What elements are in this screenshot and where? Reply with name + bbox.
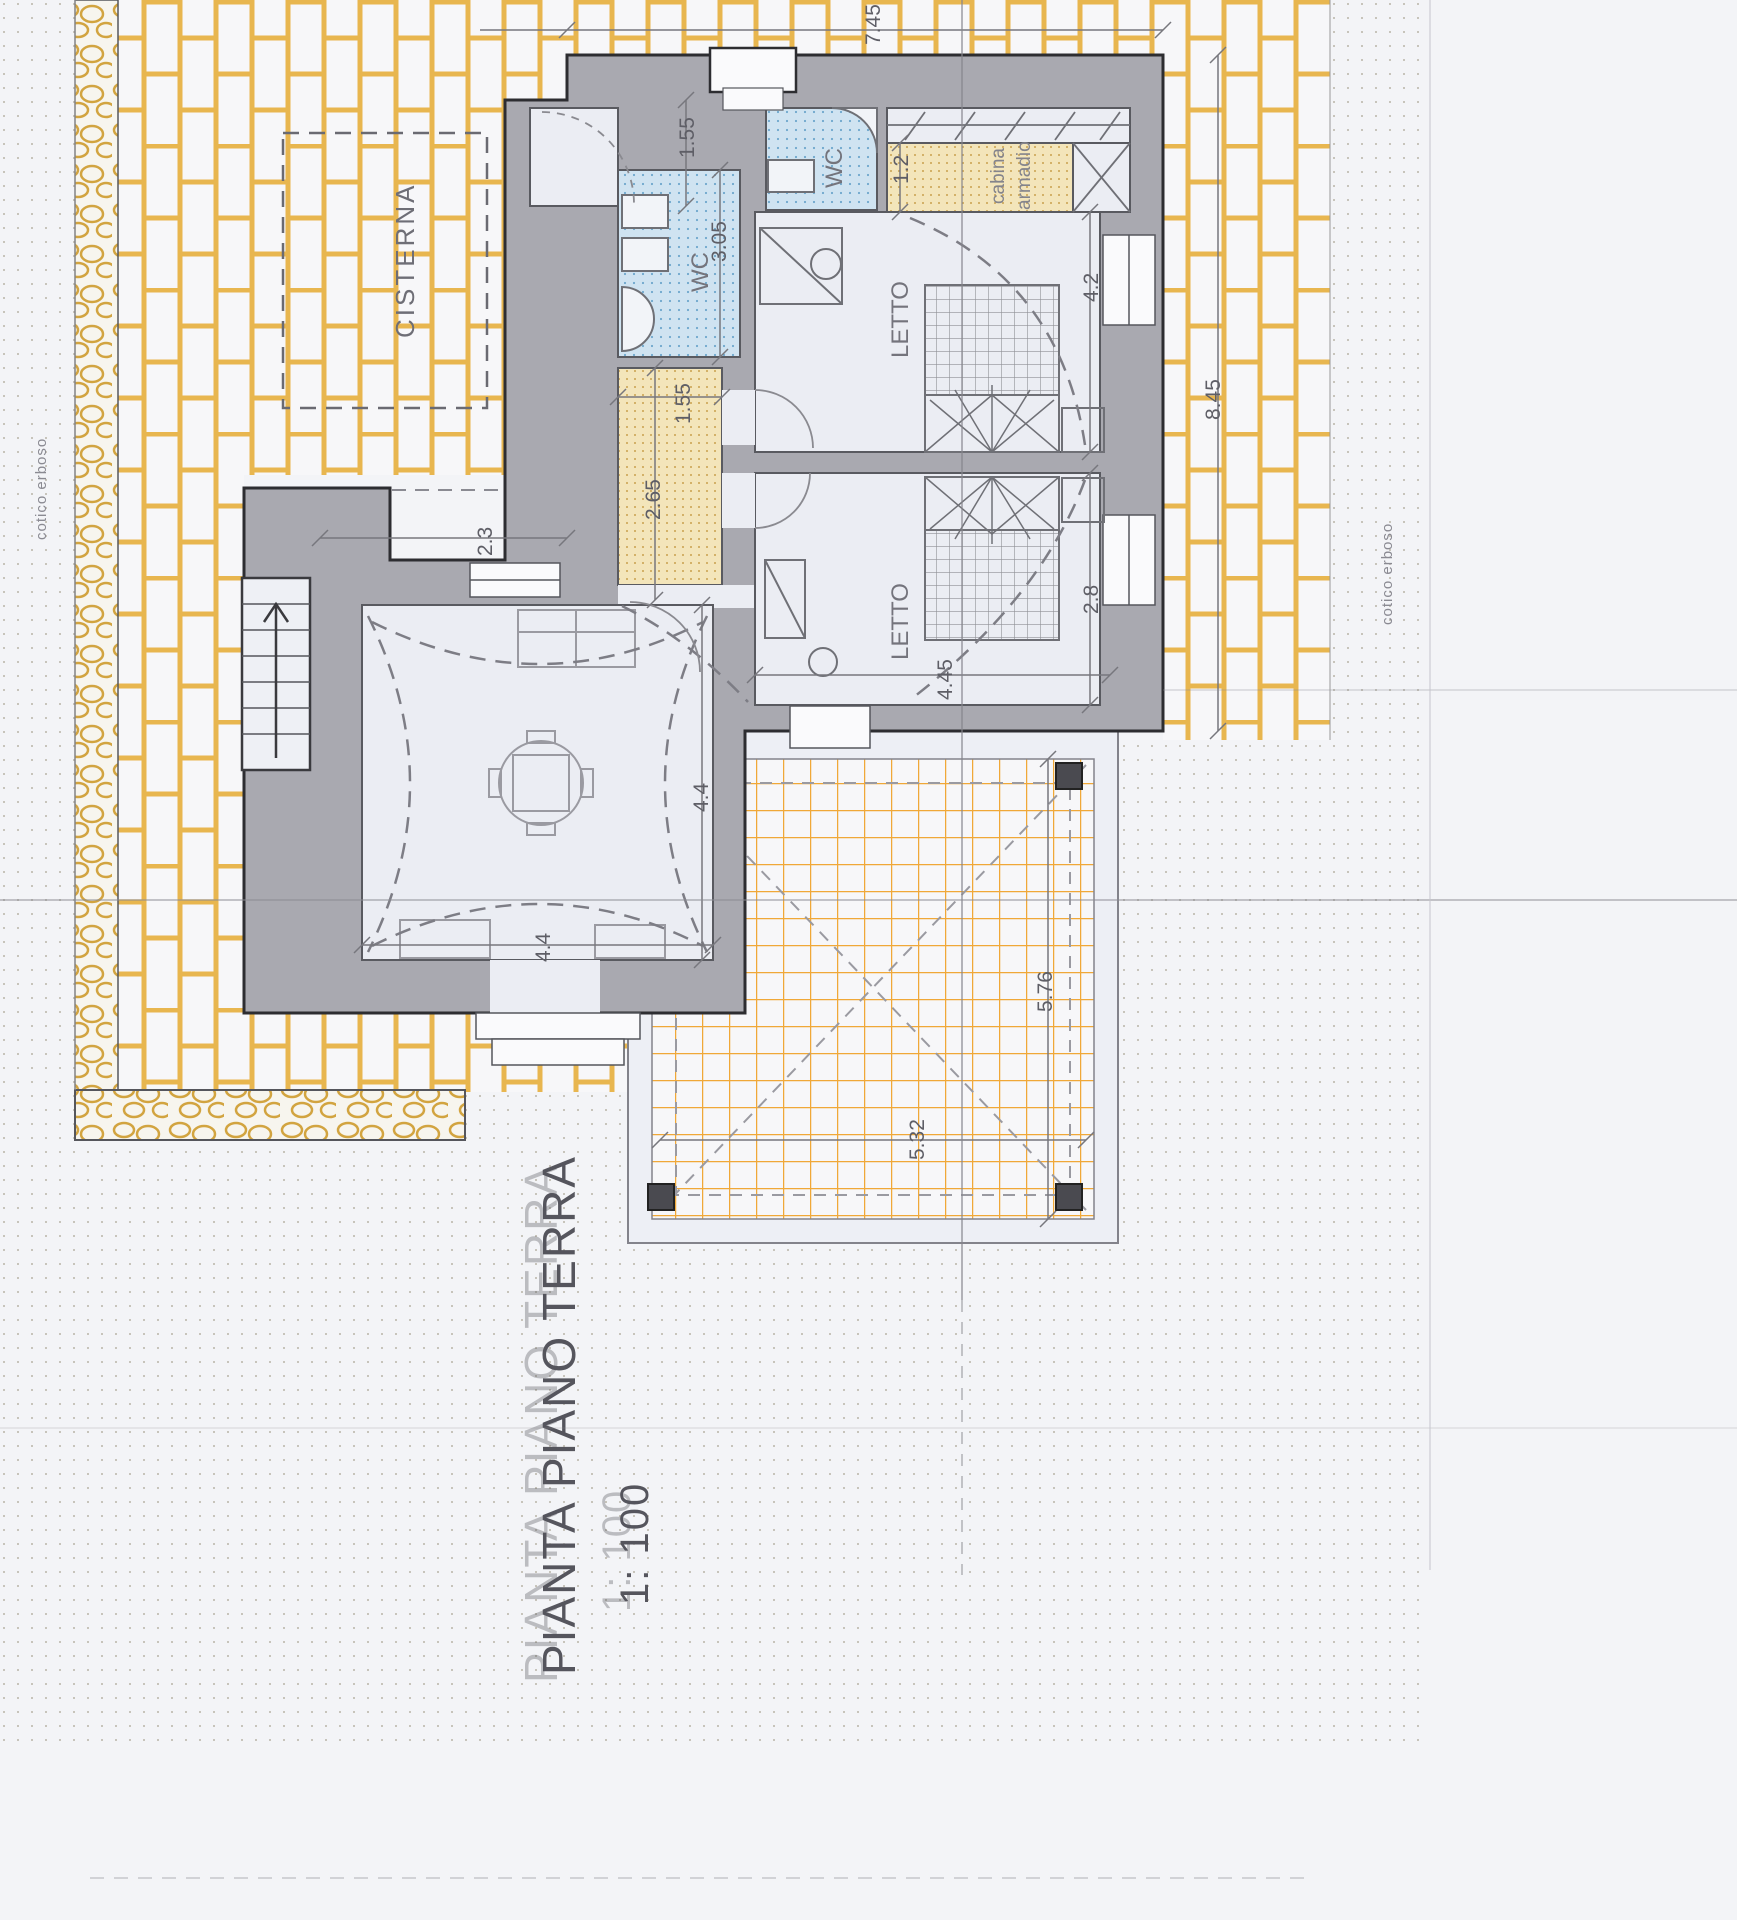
bedroom-top-label: LETTO (887, 281, 914, 358)
ground-cover-left-label: cotico erboso (33, 438, 50, 540)
wc-main-label: WC (687, 252, 714, 292)
entry-vestibule (530, 108, 618, 206)
cisterna-label: CISTERNA (390, 183, 420, 338)
dim-entry-width: 1.55 (676, 117, 699, 158)
dim-closet-depth: 1.2 (890, 155, 913, 184)
hallway (618, 368, 722, 585)
entry-porch-top (710, 48, 796, 92)
dim-bedroom-bottom-depth: 2.8 (1080, 585, 1103, 614)
floor-plan-drawing: 7.45 8.45 2.3 1.55 3.05 1.2 4.2 2.8 4.45… (0, 0, 1737, 1920)
dim-plan-width-top: 7.45 (862, 4, 885, 45)
living-terrace-door-gap (490, 960, 600, 1013)
ground-cover-right-label: cotico erboso (1379, 523, 1396, 625)
door-bedroom-terrace (790, 706, 870, 748)
living-room (362, 605, 713, 960)
closet-label-line2: armadio (1014, 141, 1035, 210)
walkin-closet (887, 143, 1073, 212)
wc-small-label: WC (821, 148, 848, 188)
entry-door-recess (723, 88, 783, 110)
dim-living-depth: 4.4 (690, 782, 713, 812)
dim-bedroom-bottom-width: 4.45 (934, 659, 957, 700)
bedroom-bottom-door-gap (722, 473, 755, 528)
dim-plan-height-right: 8.45 (1202, 379, 1225, 420)
sheet-title: PIANTA PIANO TERRA (533, 1155, 585, 1675)
sheet-scale: 1: 100 (613, 1482, 657, 1605)
bedroom-top-door-gap (722, 390, 755, 445)
bedroom-bottom-label: LETTO (887, 583, 914, 660)
dim-bedroom-top-depth: 4.2 (1080, 273, 1103, 302)
closet-label-line1: cabina (988, 148, 1009, 204)
dim-hall-length: 2.65 (642, 479, 665, 520)
dim-pergola-width: 5.32 (906, 1119, 929, 1160)
dim-annex-offset: 2.3 (474, 527, 497, 556)
porch-step-2 (492, 1039, 624, 1065)
exterior-stairs (242, 578, 310, 770)
dim-hall-width: 1.55 (672, 383, 695, 424)
dim-pergola-depth: 5.76 (1034, 971, 1057, 1012)
porch-step-1 (476, 1013, 640, 1039)
dim-living-width: 4.4 (532, 932, 555, 962)
scanned-floor-plan-sheet: 7.45 8.45 2.3 1.55 3.05 1.2 4.2 2.8 4.45… (0, 0, 1737, 1920)
